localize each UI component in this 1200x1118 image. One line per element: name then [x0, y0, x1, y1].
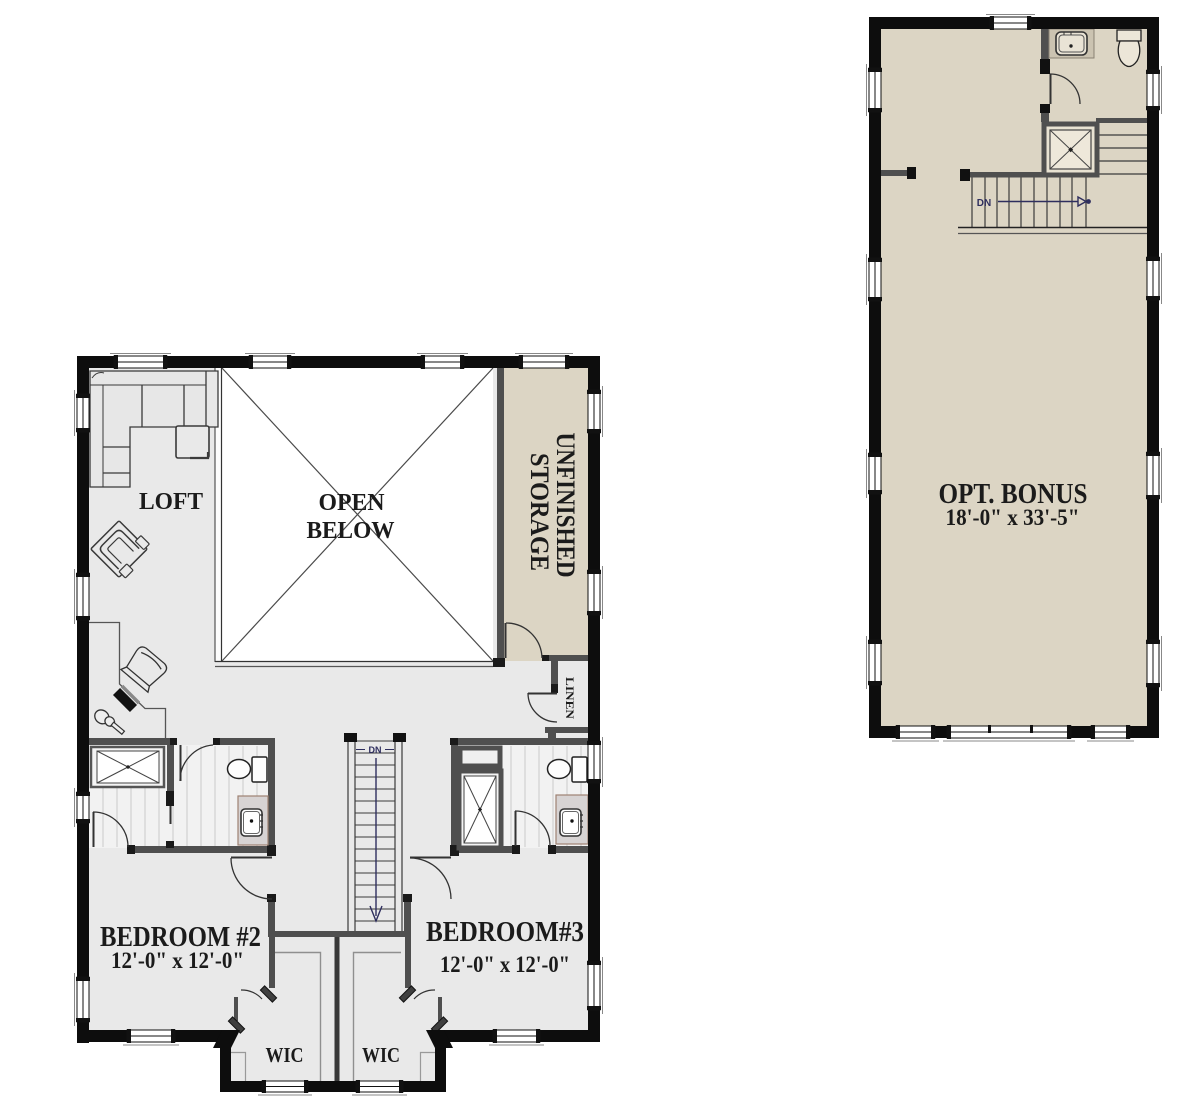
svg-text:WIC: WIC [362, 1043, 400, 1067]
svg-text:DN: DN [977, 198, 991, 209]
svg-text:LINEN: LINEN [563, 677, 577, 719]
svg-text:12'-0" x 12'-0": 12'-0" x 12'-0" [111, 948, 244, 973]
svg-text:LOFT: LOFT [139, 489, 203, 515]
svg-text:STORAGE: STORAGE [525, 453, 554, 571]
svg-text:WIC: WIC [266, 1043, 304, 1067]
svg-text:DN: DN [369, 745, 382, 755]
svg-text:OPEN: OPEN [319, 490, 386, 516]
svg-text:UNFINISHED: UNFINISHED [551, 433, 580, 578]
svg-text:BEDROOM#3: BEDROOM#3 [426, 917, 584, 948]
svg-text:18'-0" x 33'-5": 18'-0" x 33'-5" [946, 505, 1080, 530]
svg-text:BELOW: BELOW [307, 518, 395, 544]
svg-text:12'-0" x 12'-0": 12'-0" x 12'-0" [440, 952, 570, 977]
